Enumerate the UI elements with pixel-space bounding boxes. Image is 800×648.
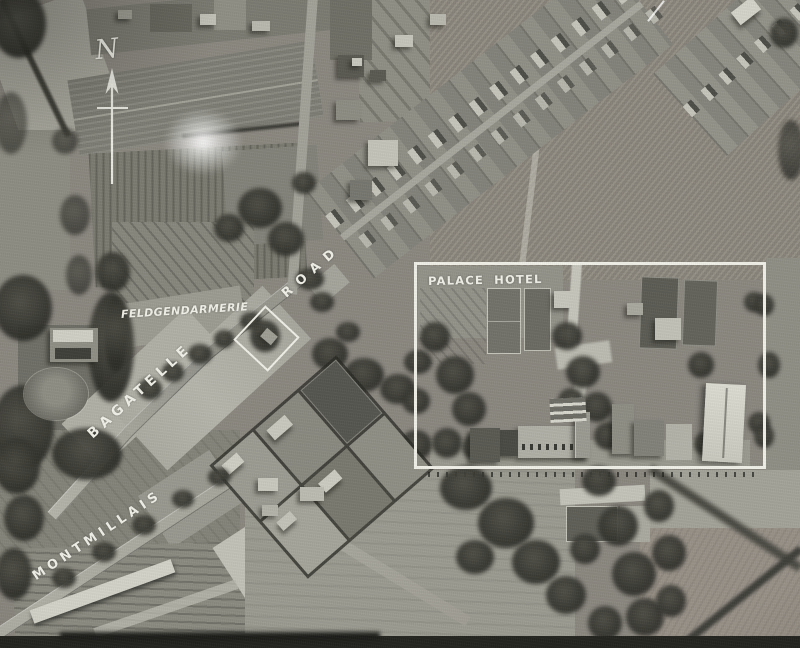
tree-clump [96, 252, 130, 292]
tree-clump [582, 466, 616, 496]
garden-plot [150, 4, 192, 32]
garden-plot [214, 0, 246, 30]
building [200, 14, 216, 25]
tree-clump [570, 534, 600, 564]
building [118, 10, 132, 19]
tree-clump [656, 585, 686, 617]
mansion-building [50, 328, 98, 362]
tree-clump [456, 540, 494, 574]
tree-clump [778, 120, 800, 180]
palace-hotel-box [414, 262, 766, 469]
palace-hotel-label: PALACE HOTEL [428, 272, 543, 288]
building [276, 510, 297, 530]
tree-clump [238, 188, 282, 228]
building [352, 58, 362, 66]
building [370, 70, 386, 81]
building [266, 415, 293, 441]
tree-clump [66, 255, 92, 295]
tree-clump [60, 195, 90, 235]
tree-clump [52, 428, 122, 480]
tree-clump [336, 322, 360, 342]
tree-clump [512, 540, 560, 584]
building [395, 35, 413, 47]
lens-flare [163, 108, 243, 176]
tree-clump [4, 495, 44, 541]
tree-clump [598, 506, 638, 546]
aerial-photo: N FELDGENDARMERIE PALACE HOTEL BAGATELLE… [0, 0, 800, 648]
tree-clump [440, 466, 492, 510]
tree-clump [208, 468, 230, 486]
building [368, 140, 398, 166]
mansion-shadow [55, 348, 91, 359]
building [350, 180, 372, 200]
tree-clump [214, 214, 244, 242]
tree-clump [268, 222, 304, 256]
building [252, 21, 270, 31]
building [430, 14, 446, 25]
building [262, 505, 278, 516]
tree-clump [310, 292, 334, 312]
circular-lawn [24, 368, 88, 420]
tree-clump [644, 490, 674, 522]
building [300, 487, 324, 501]
tree-clump [770, 18, 798, 48]
tree-clump [214, 330, 234, 348]
tree-clump [652, 535, 686, 571]
tree-clump [478, 498, 534, 548]
mansion-roof [53, 330, 93, 342]
tree-clump [588, 606, 622, 640]
tree-clump [546, 576, 586, 614]
north-arrow-icon [84, 36, 144, 188]
field-patch [330, 0, 372, 60]
tree-clump [292, 172, 316, 194]
tree-clump [612, 552, 656, 596]
building [336, 100, 360, 120]
tree-clump [52, 128, 78, 154]
building [258, 478, 278, 491]
film-edge-strip [60, 632, 380, 640]
tree-clump [172, 490, 194, 508]
